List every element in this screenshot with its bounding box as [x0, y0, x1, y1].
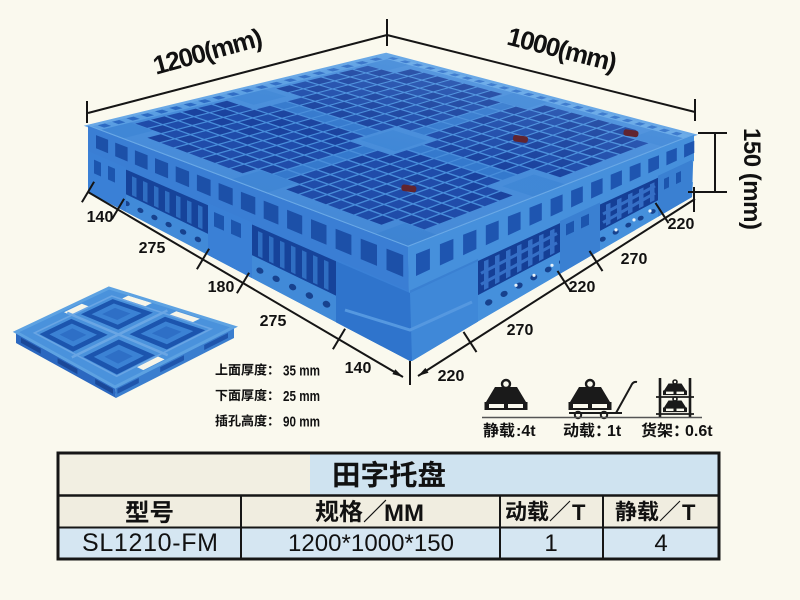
svg-text:SL1210-FM: SL1210-FM [82, 529, 218, 557]
svg-text:220: 220 [668, 216, 695, 233]
svg-text:220: 220 [569, 279, 596, 296]
svg-text:35 mm: 35 mm [283, 363, 320, 380]
svg-text:4: 4 [654, 530, 667, 557]
svg-text:T: T [682, 500, 696, 525]
svg-text:275: 275 [260, 313, 287, 330]
svg-text:1: 1 [544, 530, 557, 557]
svg-text:90 mm: 90 mm [283, 414, 320, 431]
svg-text:140: 140 [87, 209, 114, 226]
svg-text:270: 270 [507, 322, 534, 339]
svg-text:T: T [572, 500, 586, 525]
svg-text:150 (mm): 150 (mm) [738, 128, 765, 230]
svg-text:1200*1000*150: 1200*1000*150 [288, 530, 454, 557]
svg-text:0.6t: 0.6t [685, 423, 713, 440]
svg-text:220: 220 [438, 368, 465, 385]
svg-text::4t: :4t [516, 423, 536, 440]
svg-text:140: 140 [345, 360, 372, 377]
svg-text:1t: 1t [607, 423, 622, 440]
svg-text:270: 270 [621, 251, 648, 268]
svg-text:275: 275 [139, 240, 166, 257]
svg-text:180: 180 [208, 279, 235, 296]
svg-text:MM: MM [384, 500, 424, 527]
svg-text:25 mm: 25 mm [283, 388, 320, 405]
